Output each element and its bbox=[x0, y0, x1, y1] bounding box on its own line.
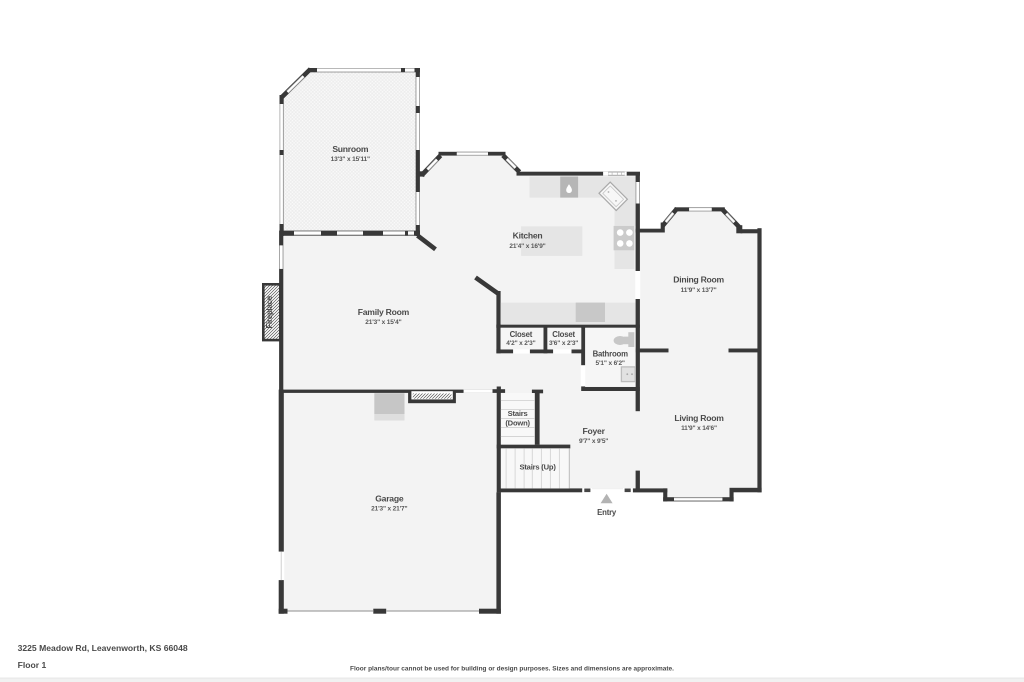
svg-text:Garage: Garage bbox=[375, 493, 404, 503]
svg-text:Foyer: Foyer bbox=[583, 426, 606, 436]
svg-text:9'7" x 9'5": 9'7" x 9'5" bbox=[579, 438, 608, 445]
svg-text:Fireplace: Fireplace bbox=[265, 295, 274, 328]
svg-text:Closet: Closet bbox=[552, 330, 575, 339]
svg-text:Floor plans/tour cannot be use: Floor plans/tour cannot be used for buil… bbox=[350, 666, 674, 673]
svg-text:Family Room: Family Room bbox=[358, 307, 410, 317]
svg-text:Bathroom: Bathroom bbox=[593, 350, 628, 359]
svg-text:5'1" x 6'2": 5'1" x 6'2" bbox=[596, 360, 625, 367]
svg-text:21'4" x 16'9": 21'4" x 16'9" bbox=[509, 243, 545, 250]
svg-text:21'3" x 21'7": 21'3" x 21'7" bbox=[371, 506, 407, 513]
svg-text:Dining Room: Dining Room bbox=[673, 275, 724, 285]
svg-text:(Down): (Down) bbox=[505, 419, 530, 428]
svg-text:Entry: Entry bbox=[597, 508, 617, 517]
svg-text:Sunroom: Sunroom bbox=[332, 144, 369, 154]
svg-text:13'3" x 15'11": 13'3" x 15'11" bbox=[331, 156, 370, 163]
svg-text:Floor 1: Floor 1 bbox=[18, 660, 47, 670]
svg-text:Stairs (Up): Stairs (Up) bbox=[519, 463, 556, 472]
svg-text:11'9" x 14'6": 11'9" x 14'6" bbox=[681, 425, 717, 432]
svg-text:Closet: Closet bbox=[510, 330, 533, 339]
svg-text:3'6" x 2'3": 3'6" x 2'3" bbox=[549, 340, 578, 347]
svg-text:4'2" x 2'3": 4'2" x 2'3" bbox=[506, 340, 535, 347]
svg-text:11'9" x 13'7": 11'9" x 13'7" bbox=[681, 287, 717, 294]
svg-text:21'3" x 15'4": 21'3" x 15'4" bbox=[365, 319, 401, 326]
svg-text:Kitchen: Kitchen bbox=[513, 231, 543, 241]
svg-text:3225 Meadow Rd, Leavenworth, K: 3225 Meadow Rd, Leavenworth, KS 66048 bbox=[18, 643, 188, 653]
svg-text:Stairs: Stairs bbox=[508, 409, 528, 418]
svg-text:Living Room: Living Room bbox=[674, 413, 724, 423]
